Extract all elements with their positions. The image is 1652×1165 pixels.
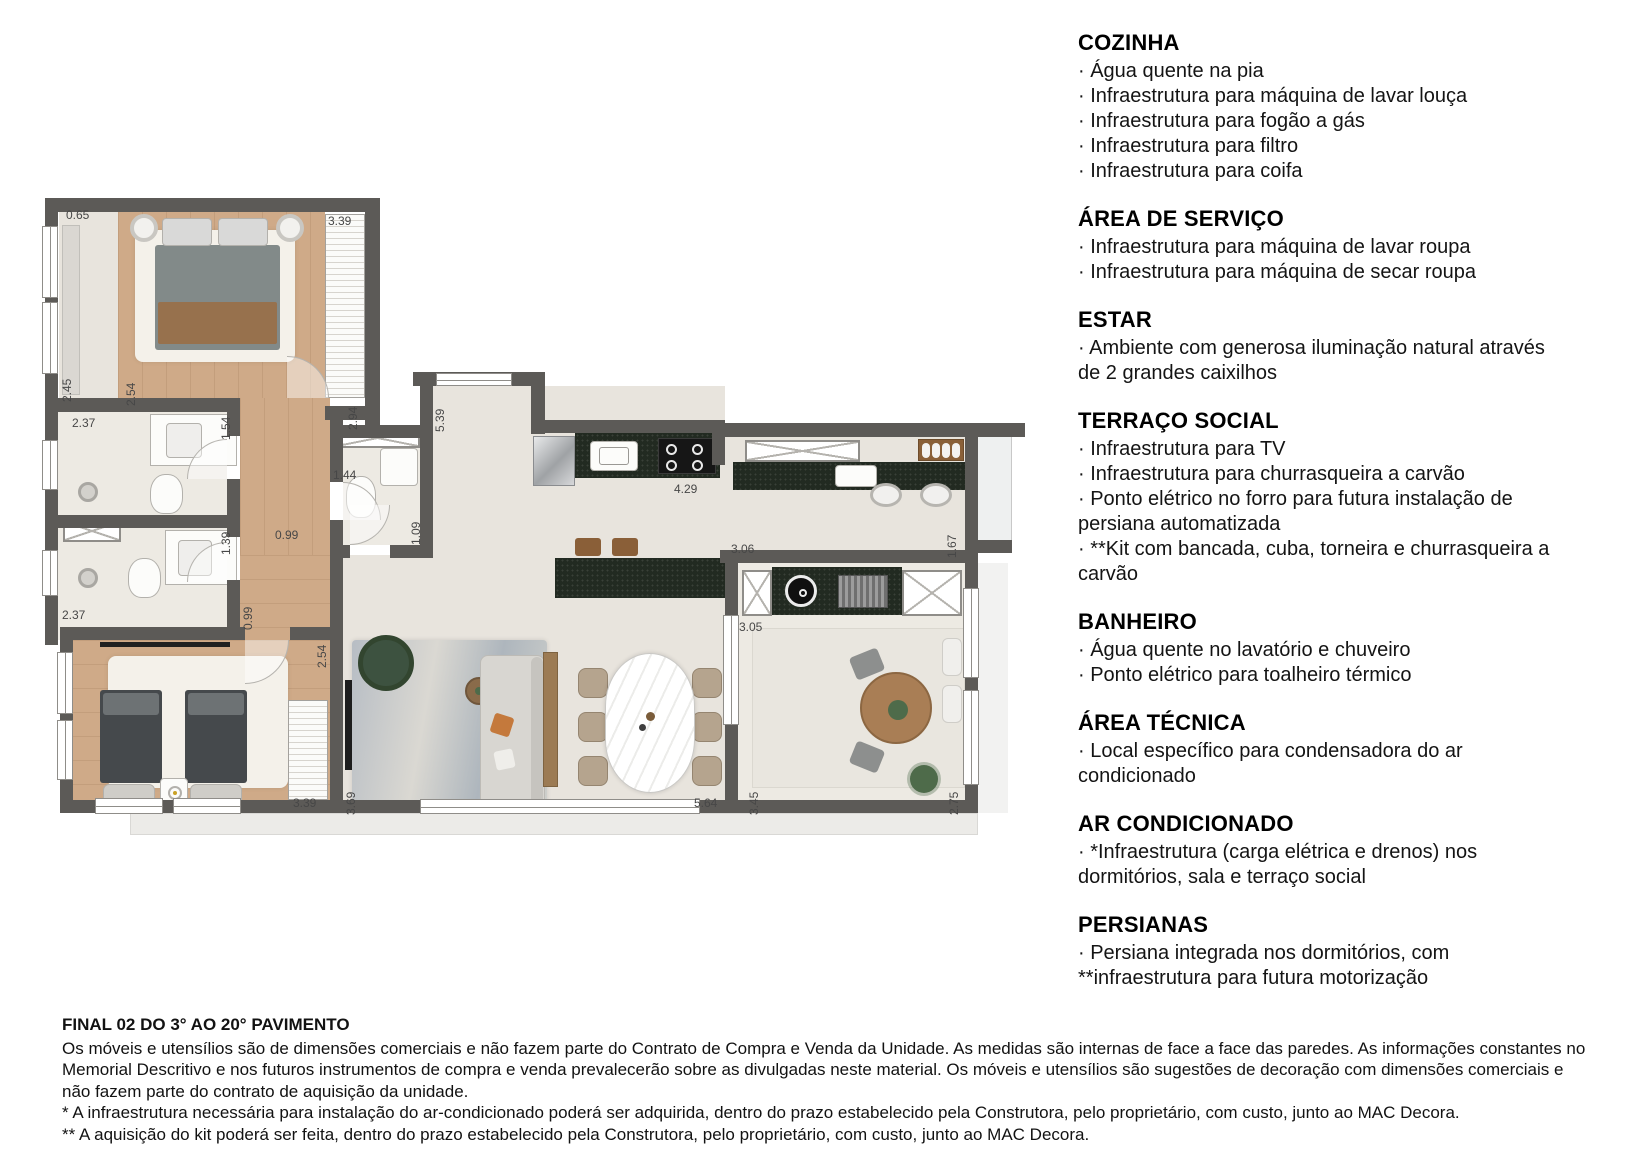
spec-section: ÁREA DE SERVIÇO· Infraestrutura para máq… [1078, 206, 1560, 285]
spec-item: · **Kit com bancada, cuba, torneira e ch… [1078, 537, 1560, 587]
dimension-label: 1.39 [219, 532, 233, 555]
dimension-label: 3.39 [293, 796, 316, 810]
spec-section: ESTAR· Ambiente com generosa iluminação … [1078, 307, 1560, 386]
dimension-label: 1.67 [945, 535, 959, 558]
spec-section-title: COZINHA [1078, 30, 1560, 56]
dimension-label: 1.09 [409, 522, 423, 545]
plan-title: FINAL 02 DO 3° AO 20° PAVIMENTO [62, 1014, 1592, 1036]
dimension-label: 3.39 [328, 214, 351, 228]
footnote-1: * A infraestrutura necessária para insta… [62, 1102, 1592, 1124]
spec-item: · Água quente na pia [1078, 59, 1560, 84]
footnote-2: ** A aquisição do kit poderá ser feita, … [62, 1124, 1592, 1146]
dimension-label: 1.54 [219, 417, 233, 440]
dimension-label: 2.37 [62, 608, 85, 622]
spec-item: · Infraestrutura para TV [1078, 437, 1560, 462]
spec-item: · Ponto elétrico para toalheiro térmico [1078, 663, 1560, 688]
dimension-label: 2.45 [60, 379, 74, 402]
dimension-label: 5.64 [694, 796, 717, 810]
spec-item: · Infraestrutura para máquina de secar r… [1078, 260, 1560, 285]
spec-section-title: AR CONDICIONADO [1078, 811, 1560, 837]
dimension-label: 3.69 [344, 792, 358, 815]
spec-section: BANHEIRO· Água quente no lavatório e chu… [1078, 609, 1560, 688]
floor-plan: 0.653.392.452.542.371.542.945.391.441.09… [40, 190, 1040, 850]
spec-item: · Infraestrutura para máquina de lavar l… [1078, 84, 1560, 109]
spec-item: · Infraestrutura para fogão a gás [1078, 109, 1560, 134]
dimension-label: 3.06 [731, 542, 754, 556]
spec-item: · Infraestrutura para filtro [1078, 134, 1560, 159]
dimension-labels: 0.653.392.452.542.371.542.945.391.441.09… [40, 190, 1040, 850]
dimension-label: 2.75 [947, 792, 961, 815]
dimension-label: 2.54 [315, 645, 329, 668]
spec-section: ÁREA TÉCNICA· Local específico para cond… [1078, 710, 1560, 789]
dimension-label: 2.37 [72, 416, 95, 430]
spec-section-title: PERSIANAS [1078, 912, 1560, 938]
dimension-label: 2.94 [346, 407, 360, 430]
spec-item: · Ponto elétrico no forro para futura in… [1078, 487, 1560, 537]
spec-section: COZINHA· Água quente na pia· Infraestrut… [1078, 30, 1560, 184]
disclaimer-text: Os móveis e utensílios são de dimensões … [62, 1038, 1592, 1103]
dimension-label: 4.29 [674, 482, 697, 496]
dimension-label: 1.44 [333, 468, 356, 482]
spec-section-title: ESTAR [1078, 307, 1560, 333]
dimension-label: 0.99 [275, 528, 298, 542]
spec-item: · Local específico para condensadora do … [1078, 739, 1560, 789]
legal-footer: FINAL 02 DO 3° AO 20° PAVIMENTO Os móvei… [62, 1014, 1592, 1145]
spec-item: · Infraestrutura para churrasqueira a ca… [1078, 462, 1560, 487]
spec-section-title: ÁREA DE SERVIÇO [1078, 206, 1560, 232]
dimension-label: 3.05 [739, 620, 762, 634]
spec-section-title: BANHEIRO [1078, 609, 1560, 635]
dimension-label: 2.54 [124, 383, 138, 406]
spec-item: · Infraestrutura para coifa [1078, 159, 1560, 184]
dimension-label: 5.39 [433, 409, 447, 432]
spec-section: AR CONDICIONADO· *Infraestrutura (carga … [1078, 811, 1560, 890]
spec-item: · Ambiente com generosa iluminação natur… [1078, 336, 1560, 386]
spec-section-title: TERRAÇO SOCIAL [1078, 408, 1560, 434]
spec-section-title: ÁREA TÉCNICA [1078, 710, 1560, 736]
dimension-label: 0.99 [241, 607, 255, 630]
spec-item: · Infraestrutura para máquina de lavar r… [1078, 235, 1560, 260]
brochure-page: 0.653.392.452.542.371.542.945.391.441.09… [0, 0, 1652, 1165]
dimension-label: 3.45 [747, 792, 761, 815]
spec-list: COZINHA· Água quente na pia· Infraestrut… [1078, 30, 1560, 1013]
spec-section: PERSIANAS· Persiana integrada nos dormit… [1078, 912, 1560, 991]
spec-item: · *Infraestrutura (carga elétrica e dren… [1078, 840, 1560, 890]
spec-item: · Persiana integrada nos dormitórios, co… [1078, 941, 1560, 991]
spec-item: · Água quente no lavatório e chuveiro [1078, 638, 1560, 663]
dimension-label: 0.65 [66, 208, 89, 222]
spec-section: TERRAÇO SOCIAL· Infraestrutura para TV· … [1078, 408, 1560, 587]
